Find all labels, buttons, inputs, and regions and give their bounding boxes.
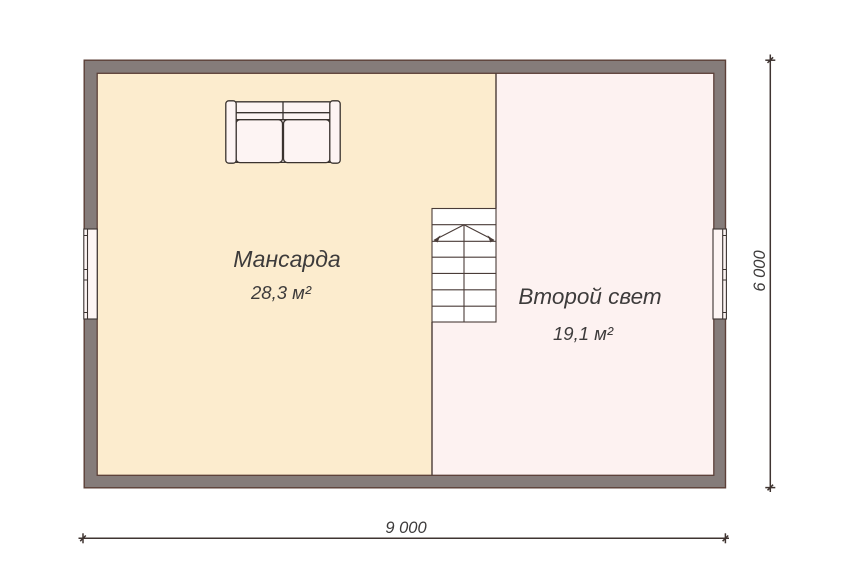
svg-text:19,1 м²: 19,1 м²	[553, 323, 614, 344]
svg-text:9 000: 9 000	[385, 519, 427, 537]
svg-text:Мансарда: Мансарда	[233, 246, 340, 272]
svg-text:6 000: 6 000	[751, 250, 769, 292]
svg-text:28,3 м²: 28,3 м²	[250, 282, 312, 303]
svg-text:Второй свет: Второй свет	[518, 284, 661, 309]
